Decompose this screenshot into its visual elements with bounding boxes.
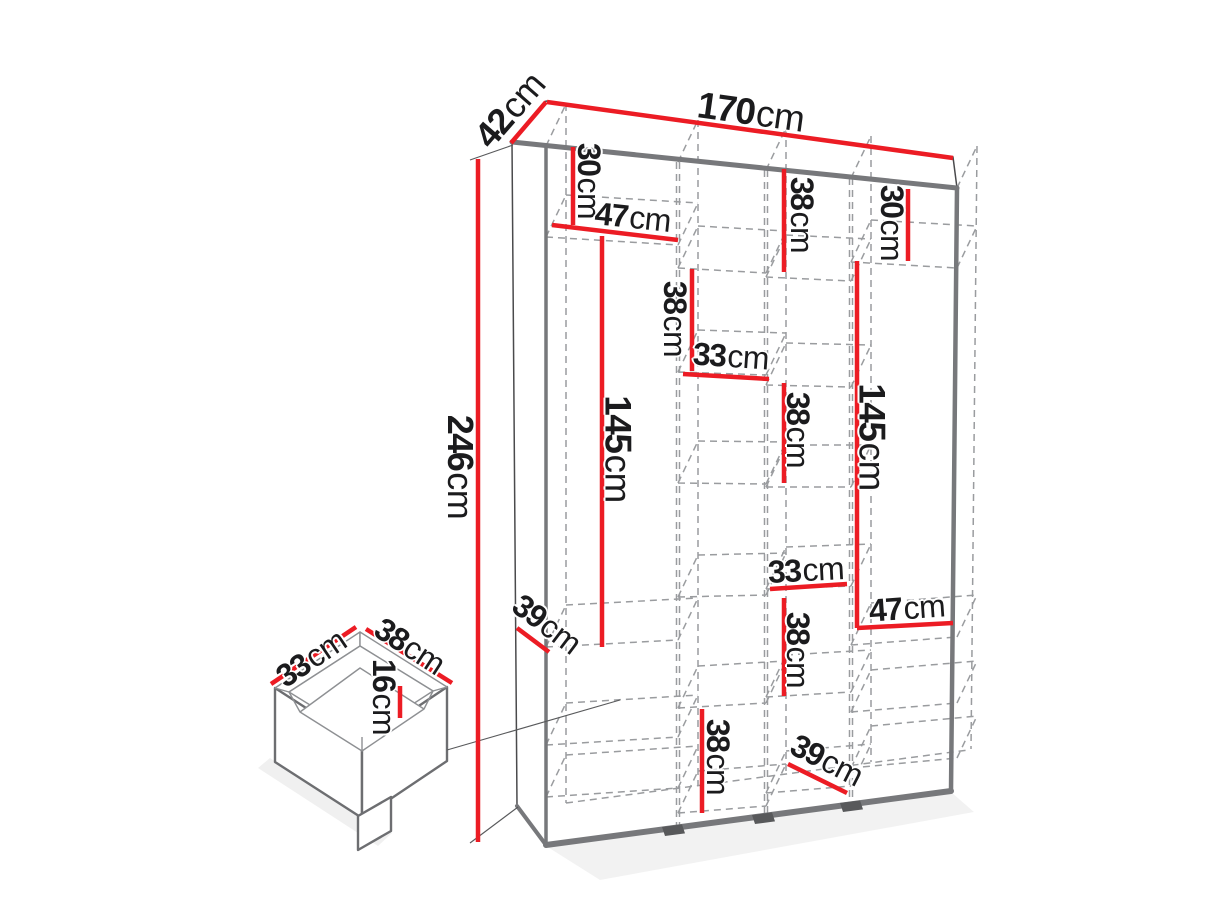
dim-label-38-col3-lower: 38cm bbox=[782, 612, 814, 688]
dim-label-30-top-right: 30cm bbox=[876, 185, 908, 261]
dim-label-47-right: 47cm bbox=[868, 589, 946, 626]
dim-label-height-246: 246cm bbox=[442, 415, 478, 520]
dim-label-38-col3-top: 38cm bbox=[786, 177, 818, 253]
dim-label-145-left: 145cm bbox=[600, 395, 637, 503]
dim-label-38-col2-upper: 38cm bbox=[659, 281, 691, 357]
dim-label-145-right: 145cm bbox=[854, 383, 891, 491]
dim-label-33-col2: 33cm bbox=[692, 337, 770, 374]
dim-label-33-col3: 33cm bbox=[767, 552, 845, 588]
wardrobe-left-panel bbox=[512, 142, 546, 845]
dim-label-16-drawer: 16cm bbox=[368, 659, 400, 735]
dimension-diagram: 42cm 170cm 30cm 47cm 38cm 30cm 246cm 145… bbox=[0, 0, 1214, 911]
dim-label-38-col3-mid: 38cm bbox=[782, 392, 814, 468]
dim-label-38-col2-bottom: 38cm bbox=[702, 719, 734, 795]
dim-label-47-top-left: 47cm bbox=[593, 197, 672, 237]
